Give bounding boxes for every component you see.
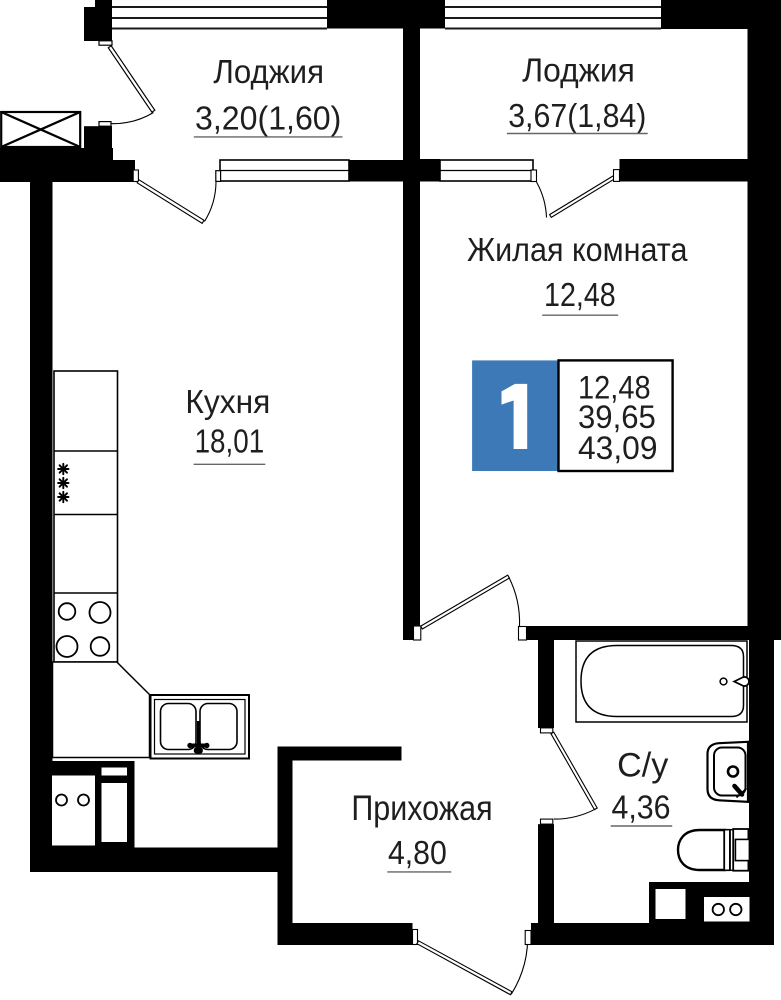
svg-text:Жилая комната: Жилая комната: [467, 231, 688, 268]
svg-text:3,67(1,84): 3,67(1,84): [508, 97, 646, 134]
svg-text:Кухня: Кухня: [185, 383, 270, 420]
svg-text:18,01: 18,01: [195, 423, 265, 460]
svg-text:С/у: С/у: [617, 747, 668, 785]
svg-text:3,20(1,60): 3,20(1,60): [195, 100, 341, 137]
svg-text:4,36: 4,36: [611, 788, 670, 825]
svg-text:43,09: 43,09: [578, 430, 658, 466]
svg-text:4,80: 4,80: [388, 834, 447, 871]
svg-text:Лоджия: Лоджия: [522, 52, 635, 89]
svg-text:Прихожая: Прихожая: [351, 789, 492, 828]
svg-text:12,48: 12,48: [544, 276, 616, 313]
svg-text:Лоджия: Лоджия: [213, 53, 324, 90]
